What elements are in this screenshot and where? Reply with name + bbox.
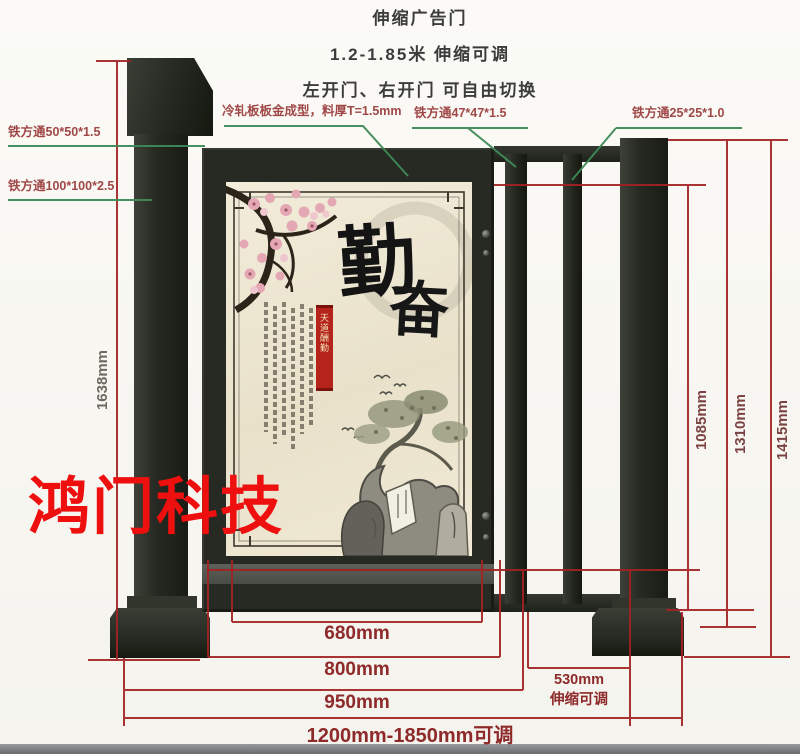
dim-telescopic-width: 530mm: [527, 671, 631, 691]
right-column: [620, 138, 668, 608]
label-steel-tube-25: 铁方通25*25*1.0: [632, 102, 724, 121]
ink-rocks: [342, 466, 468, 556]
door-lock-knob-bottom: [482, 512, 490, 520]
opening-direction-text: 左开门、右开门 可自由切换: [130, 76, 710, 101]
right-pedestal-base: [592, 608, 684, 656]
poem-columns: [266, 302, 311, 450]
dim-width-950: 950mm: [287, 692, 427, 714]
label-steel-tube-100: 铁方通100*100*2.5: [8, 175, 114, 194]
door-lock-knob-top: [482, 230, 490, 238]
dim-telescopic-note: 伸缩可调: [527, 691, 631, 711]
seal-text: 天道酬勤: [318, 313, 331, 388]
product-title: 伸缩广告门: [130, 4, 710, 29]
telescopic-bar-47: [505, 154, 527, 604]
label-steel-tube-50: 铁方通50*50*1.5: [8, 121, 100, 140]
motor-housing-box: [127, 58, 213, 136]
door-keyhole-bottom: [483, 534, 489, 540]
dim-left-height-1638: 1638mm: [93, 340, 111, 420]
label-steel-tube-47: 铁方通47*47*1.5: [414, 102, 506, 121]
dim-right-height-1415: 1415mm: [773, 390, 791, 470]
header-title-block: 伸缩广告门 1.2-1.85米 伸缩可调 左开门、右开门 可自由切换: [130, 4, 710, 112]
calligraphy-char-fen: 奋: [387, 279, 450, 342]
dim-right-height-1310: 1310mm: [731, 384, 749, 464]
dim-width-range: 1200mm-1850mm可调: [240, 719, 580, 748]
dim-telescopic-530: 530mm 伸缩可调: [527, 671, 631, 710]
dim-width-680: 680mm: [287, 623, 427, 645]
dim-width-800: 800mm: [287, 659, 427, 681]
plum-branch: [226, 188, 337, 310]
red-seal-ribbon: 天道酬勤: [316, 308, 333, 388]
door-bottom-rail-band: [202, 564, 494, 584]
size-range-text: 1.2-1.85米 伸缩可调: [130, 40, 710, 65]
left-pedestal-base: [110, 608, 210, 658]
door-keyhole-top: [483, 250, 489, 256]
advertising-gate-diagram: 伸缩广告门 1.2-1.85米 伸缩可调 左开门、右开门 可自由切换: [0, 0, 800, 754]
company-watermark: 鸿门科技: [28, 456, 284, 546]
telescopic-bar-25: [563, 154, 582, 604]
dim-right-height-1085: 1085mm: [692, 380, 710, 460]
label-cold-rolled-sheet: 冷轧板板金成型，料厚T=1.5mm: [222, 100, 402, 119]
